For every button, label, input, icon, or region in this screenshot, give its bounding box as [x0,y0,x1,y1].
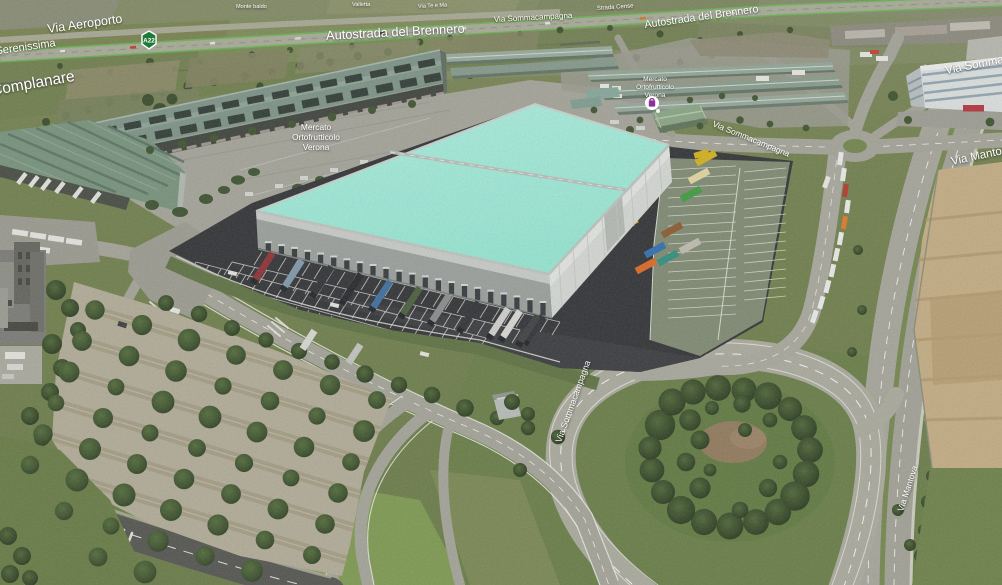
svg-text:Ortofrutticolo: Ortofrutticolo [292,132,340,142]
svg-text:Valletta: Valletta [352,2,371,8]
svg-text:Ortofrutticolo: Ortofrutticolo [636,84,674,91]
svg-text:Monte baldo: Monte baldo [236,4,267,10]
svg-text:Mercato: Mercato [301,122,332,132]
svg-text:Verona: Verona [303,142,330,152]
svg-text:Mercato: Mercato [643,76,667,83]
svg-text:A22: A22 [143,38,155,45]
